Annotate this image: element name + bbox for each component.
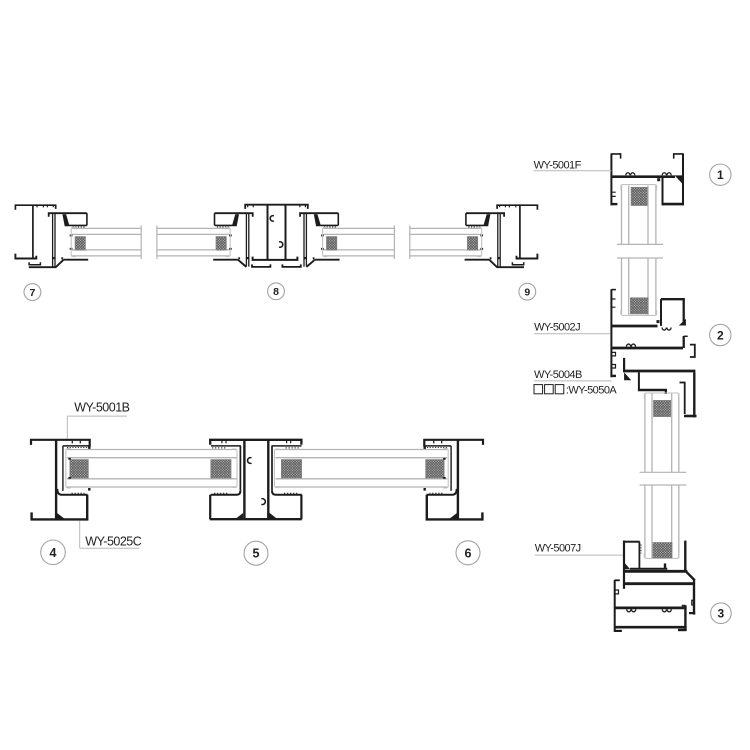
svg-text:6: 6 (465, 546, 472, 560)
svg-text:3: 3 (718, 607, 725, 621)
svg-text:5: 5 (253, 547, 260, 561)
svg-text:4: 4 (50, 546, 57, 560)
svg-text:WY-5025C: WY-5025C (85, 535, 141, 549)
svg-text:WY-5007J: WY-5007J (535, 543, 581, 555)
svg-text:9: 9 (524, 286, 530, 298)
svg-text:1: 1 (717, 168, 724, 182)
svg-text:WY-5001F: WY-5001F (534, 159, 582, 171)
svg-text:2: 2 (717, 328, 724, 342)
svg-text:WY-5001B: WY-5001B (74, 401, 129, 415)
svg-text:WY-5004B: WY-5004B (534, 369, 582, 381)
svg-text::WY-5050A: :WY-5050A (566, 385, 617, 397)
svg-text:WY-5002J: WY-5002J (534, 321, 580, 333)
svg-text:8: 8 (273, 286, 279, 298)
svg-text:7: 7 (29, 287, 35, 299)
